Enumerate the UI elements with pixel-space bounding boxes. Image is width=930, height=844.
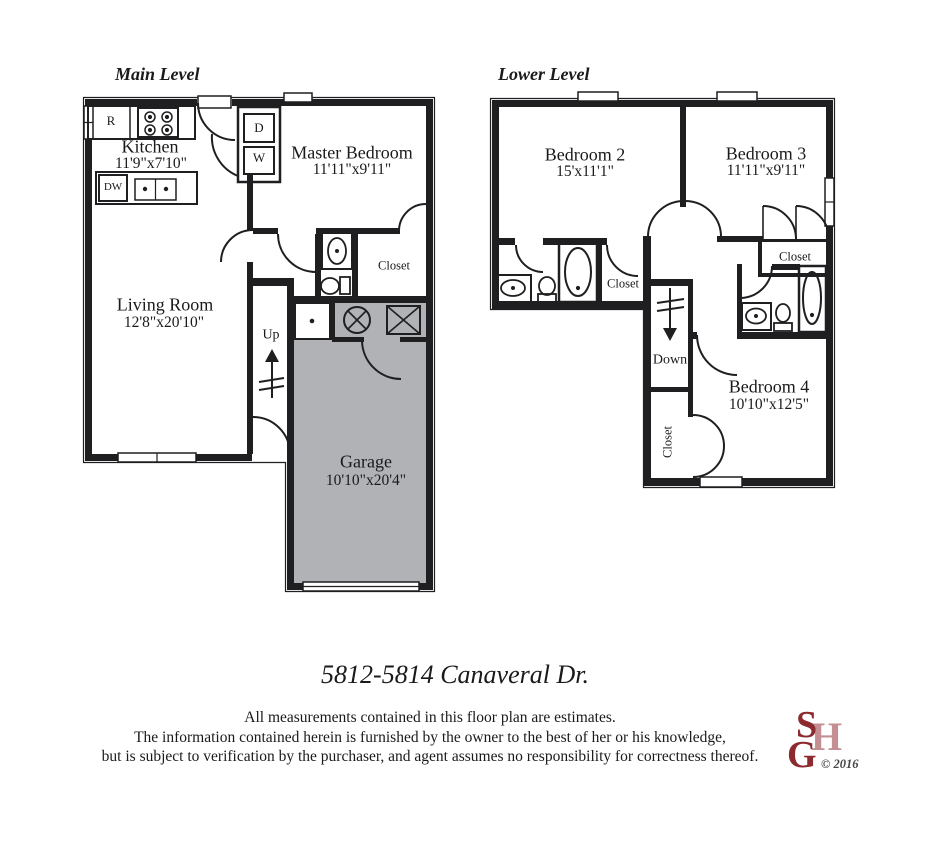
up-arrow-icon — [259, 349, 284, 398]
stairs-closet-label: Closet — [661, 426, 674, 458]
toilet-icon — [321, 278, 339, 294]
living-door-arc — [221, 230, 253, 262]
toilet-tank — [340, 277, 350, 294]
disclaimer-line3: but is subject to verification by the pu… — [102, 747, 759, 767]
bedroom3-dims: 11'11"x9'11" — [727, 163, 806, 179]
floor-plan-page: Main Level Lower Level Kitchen 11'9"x7'1… — [0, 0, 930, 844]
lower-bath1-fixtures — [496, 243, 597, 302]
logo-copyright: © 2016 — [821, 757, 858, 772]
bedroom2-dims: 15'x11'1" — [556, 164, 614, 180]
closet-door-arc — [607, 245, 638, 276]
washer-label: W — [253, 151, 265, 165]
main-bath-fixtures — [321, 233, 352, 294]
master-door-arc — [278, 234, 316, 272]
bedroom3-closet-door-arc — [796, 206, 829, 239]
living-room-label: Living Room — [117, 296, 214, 315]
master-bedroom-label: Master Bedroom — [291, 144, 412, 163]
bath-closet-label: Closet — [607, 277, 639, 290]
bedroom3-closet-door-arc — [763, 206, 796, 239]
kitchen-label: Kitchen — [122, 138, 179, 157]
laundry-fixtures — [238, 107, 280, 182]
bedroom3-closet-label: Closet — [779, 250, 811, 263]
entry-threshold — [198, 96, 231, 108]
garage-label: Garage — [340, 453, 392, 472]
garage-dims: 10'10"x20'4" — [326, 473, 406, 489]
bedroom2-label: Bedroom 2 — [545, 146, 626, 165]
main-level-title: Main Level — [115, 64, 199, 85]
disclaimer-line2: The information contained herein is furn… — [102, 728, 759, 748]
window — [717, 92, 757, 101]
bedroom3-door-arc — [686, 201, 721, 238]
logo-letter-g: G — [787, 736, 817, 774]
stair-hall-door-arc — [253, 417, 290, 454]
toilet-tank — [774, 323, 792, 331]
bedroom4-closet-door-arc — [693, 415, 724, 446]
bedroom4-door-arc — [697, 335, 737, 375]
dryer-label: D — [254, 121, 263, 135]
bath-door-arc — [516, 245, 543, 272]
main-closet-label: Closet — [378, 259, 410, 272]
toilet-icon — [539, 277, 555, 295]
refrigerator-label: R — [107, 114, 116, 128]
master-bedroom-dims: 11'11"x9'11" — [313, 162, 392, 178]
bedroom2-door-arc — [648, 201, 683, 238]
down-arrow-icon — [657, 288, 684, 341]
disclaimer-line1: All measurements contained in this floor… — [102, 708, 759, 728]
window — [700, 477, 742, 487]
kitchen-dims: 11'9"x7'10" — [115, 156, 187, 172]
bedroom4-closet-door-arc — [693, 446, 724, 477]
bedroom4-label: Bedroom 4 — [729, 378, 810, 397]
disclaimer-text: All measurements contained in this floor… — [102, 708, 759, 767]
dishwasher-label: DW — [104, 182, 122, 194]
living-room-dims: 12'8"x20'10" — [124, 315, 204, 331]
lower-level-title: Lower Level — [498, 64, 589, 85]
closet-door-arc — [399, 204, 426, 231]
address-title: 5812-5814 Canaveral Dr. — [321, 660, 589, 690]
bedroom4-dims: 10'10"x12'5" — [729, 397, 809, 413]
down-label: Down — [653, 354, 687, 369]
window — [284, 93, 312, 102]
toilet-icon — [776, 304, 790, 322]
bath2-door-arc — [740, 266, 772, 298]
bedroom3-label: Bedroom 3 — [726, 145, 807, 164]
garage-fill — [294, 303, 426, 585]
up-label: Up — [262, 329, 279, 344]
window — [578, 92, 618, 101]
